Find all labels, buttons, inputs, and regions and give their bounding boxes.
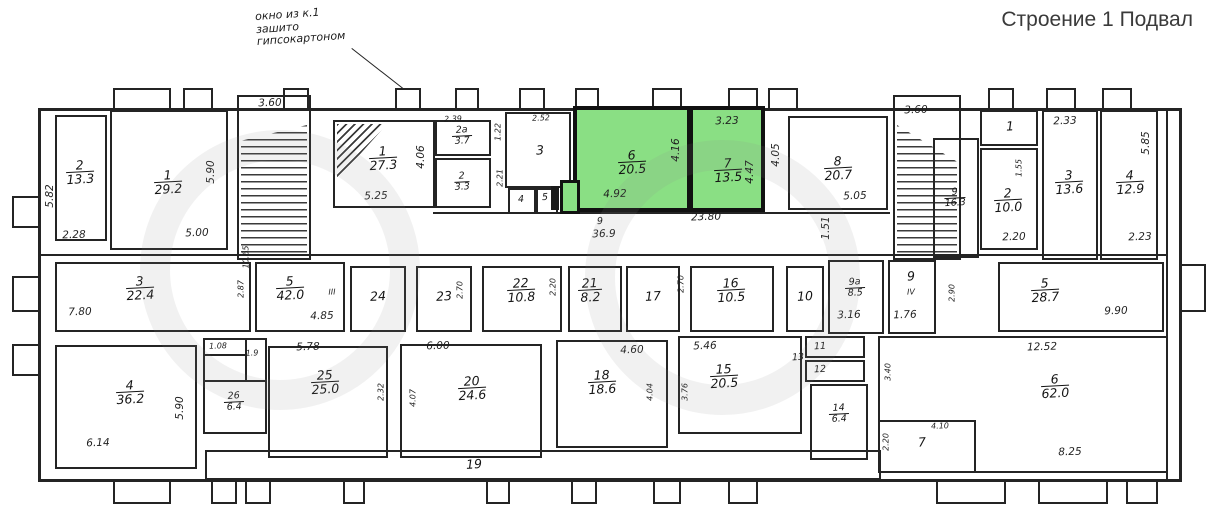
wall-block: [551, 186, 559, 210]
dimension-label: 2.90: [948, 284, 957, 302]
dimension-label: 7.80: [68, 306, 92, 319]
dimension-label: 6.14: [86, 437, 110, 450]
window-bump: [183, 88, 213, 110]
window-bump: [12, 276, 40, 312]
dimension-label: 1.08: [209, 341, 227, 351]
dimension-label: 2.52: [532, 113, 550, 123]
room-label: 313.6: [1054, 168, 1083, 197]
room-label: 412.9: [1115, 168, 1144, 197]
window-bump: [728, 480, 758, 504]
window-bump: [113, 88, 171, 110]
room-label: 266.4: [223, 391, 244, 413]
dimension-label: 2.23: [1128, 231, 1152, 244]
room-label: 129.2: [153, 168, 182, 197]
dimension-label: 9.90: [1104, 305, 1128, 318]
window-bump: [1180, 264, 1206, 312]
stairs-hatch: [241, 125, 307, 256]
wall: [203, 354, 245, 356]
room-label: 210.0: [993, 186, 1022, 215]
room-label: 19: [462, 457, 487, 471]
dimension-label: 1.22: [494, 123, 503, 141]
window-bump: [455, 88, 479, 110]
dimension-label: 6.00: [426, 340, 450, 353]
window-bump: [12, 344, 40, 376]
dimension-label: 2.32: [377, 383, 386, 401]
dimension-label: 2.33: [1053, 115, 1077, 128]
dimension-label: 2.20: [882, 433, 891, 451]
room-label: 146.4: [828, 403, 849, 425]
room-label: 218.2: [577, 276, 602, 304]
dimension-label: 4.85: [310, 310, 334, 323]
window-bump: [486, 480, 510, 504]
dimension-label: 5.90: [174, 396, 186, 419]
window-bump: [245, 480, 271, 504]
room-label: 662.0: [1040, 372, 1069, 401]
dimension-label: 5.05: [843, 190, 867, 203]
room-label: 2024.6: [457, 374, 486, 403]
dimension-label: 4.92: [603, 188, 627, 201]
dimension-label: 3.23: [715, 115, 739, 128]
room-label: 5: [538, 193, 553, 204]
dimension-label: 5.85: [1140, 131, 1152, 154]
room-label: 820.7: [823, 154, 852, 183]
dimension-label: 2.28: [62, 229, 86, 242]
room-label: 23: [432, 289, 457, 303]
room-label: 1520.5: [709, 362, 738, 391]
room-label: 9: [903, 269, 920, 283]
dimension-label: 2.87: [237, 280, 246, 298]
dimension-label: 4.60: [620, 344, 644, 357]
window-bump: [571, 480, 597, 504]
room-label: 9: [593, 217, 608, 228]
window-bump: [1102, 88, 1132, 110]
window-bump: [395, 88, 421, 110]
room-label: 213.3: [65, 158, 94, 187]
dimension-label: 2.70: [456, 281, 465, 299]
window-bump: [1046, 88, 1076, 110]
room-label-highlighted-6: 620.5: [617, 148, 646, 177]
dimension-label: 5.25: [364, 190, 388, 203]
dimension-label: 12.52: [1027, 340, 1057, 353]
dimension-label: 10.65: [242, 246, 251, 269]
room-label: 7: [914, 435, 931, 449]
dimension-label: 1.76: [893, 309, 917, 322]
dimension-label: 5.78: [296, 341, 320, 354]
dimension-label: 4.05: [770, 143, 782, 166]
dimension-label: 5.00: [185, 227, 209, 240]
room-label: 528.7: [1030, 276, 1059, 305]
room-label: 436.2: [115, 378, 144, 407]
room-label: 4: [514, 195, 529, 206]
room-label: 24: [366, 289, 391, 303]
dimension-label: 4.04: [646, 383, 655, 401]
room-label: 2525.0: [310, 368, 339, 397]
window-bump: [12, 196, 40, 228]
dimension-label: 2.20: [549, 278, 558, 296]
window-bump: [113, 480, 171, 504]
window-bump: [519, 88, 545, 110]
room-label: 1: [1002, 119, 1019, 133]
dimension-label: 8.25: [1058, 446, 1082, 459]
room-outline: [268, 346, 388, 458]
highlighted-cell[interactable]: [560, 180, 580, 214]
room-label: 322.4: [125, 274, 154, 303]
dimension-label: 4.47: [744, 160, 756, 183]
dimension-label: 2.20: [1002, 231, 1026, 244]
window-bump: [988, 88, 1014, 110]
room-label: 13: [788, 352, 809, 363]
dimension-label: 1.51: [820, 216, 832, 239]
corridor-outline: [205, 450, 881, 480]
room-label: 17: [641, 289, 666, 303]
dimension-label: III: [328, 287, 335, 296]
dimension-label: 5.90: [205, 160, 217, 183]
dimension-label: 3.16: [837, 309, 861, 322]
dimension-label: 1.9: [245, 348, 258, 357]
wall: [38, 254, 1166, 256]
window-bump: [343, 480, 365, 504]
dimension-label: 2.21: [496, 169, 505, 187]
room-label: 2210.8: [506, 276, 535, 305]
room-outline: [998, 262, 1164, 332]
window-bump: [768, 88, 798, 110]
room-label: 916.3: [944, 187, 966, 209]
room-label: 12: [810, 364, 831, 375]
room-label: 11: [810, 341, 831, 352]
room-label: 10: [793, 289, 818, 303]
dimension-label: 4.16: [670, 138, 682, 161]
dimension-label: 3.40: [884, 363, 893, 381]
room-label: 127.3: [368, 144, 397, 173]
room-label: 1610.5: [716, 276, 745, 305]
room-label: 542.0: [275, 274, 304, 303]
annotation-note: окно из к.1 зашито гипсокартоном: [255, 5, 346, 49]
wall: [245, 338, 247, 382]
floor-plan: Строение 1 Подвал окно из к.1 зашито гип…: [0, 0, 1213, 523]
dimension-label: 2.70: [677, 275, 686, 293]
window-bump: [1126, 480, 1158, 504]
dimension-label: 5.46: [693, 340, 717, 353]
window-bump: [653, 480, 681, 504]
window-bump: [936, 480, 1006, 504]
room-label: 3: [532, 143, 549, 157]
dimension-label: 4.07: [409, 389, 418, 407]
dimension-label: 5.82: [44, 184, 56, 207]
dimension-label: 3.76: [681, 383, 690, 401]
dimension-label: 23.80: [691, 210, 721, 223]
dimension-label: 3.60: [258, 97, 282, 110]
window-bump: [211, 480, 237, 504]
dimension-label: 4.10: [931, 421, 949, 431]
dimension-label: 36.9: [592, 228, 616, 241]
page-title: Строение 1 Подвал: [1001, 8, 1193, 32]
dimension-label: 3.60: [904, 104, 928, 117]
wall: [433, 212, 890, 214]
dimension-label: 2.39: [444, 114, 462, 124]
room-label-highlighted-7: 713.5: [713, 156, 742, 185]
room-label: 9а8.5: [845, 277, 866, 299]
room-label: 2а3.7: [452, 125, 473, 147]
room-label: 23.3: [454, 171, 470, 193]
dimension-label: 4.06: [415, 145, 427, 168]
dimension-label: 1.55: [1015, 159, 1024, 177]
room-label: 1818.6: [587, 368, 616, 397]
window-bump: [1038, 480, 1108, 504]
dimension-label: IV: [907, 287, 915, 296]
